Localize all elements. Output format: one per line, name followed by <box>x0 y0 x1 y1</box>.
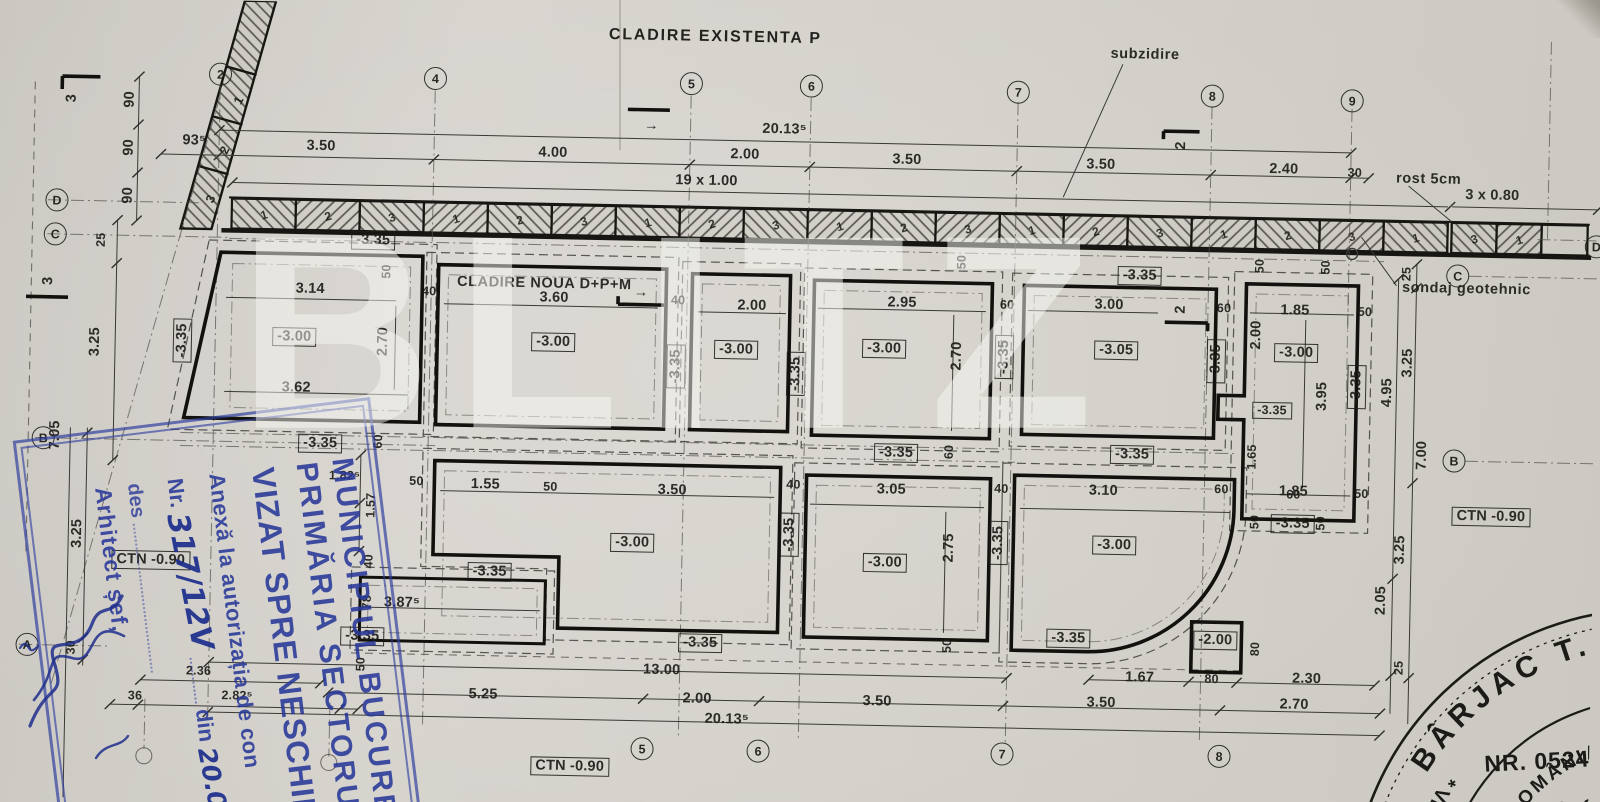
signature-scribble <box>20 596 128 758</box>
signature-layer <box>0 0 1600 802</box>
scanned-plan-page: 123123123123123123131 <box>0 0 1600 802</box>
